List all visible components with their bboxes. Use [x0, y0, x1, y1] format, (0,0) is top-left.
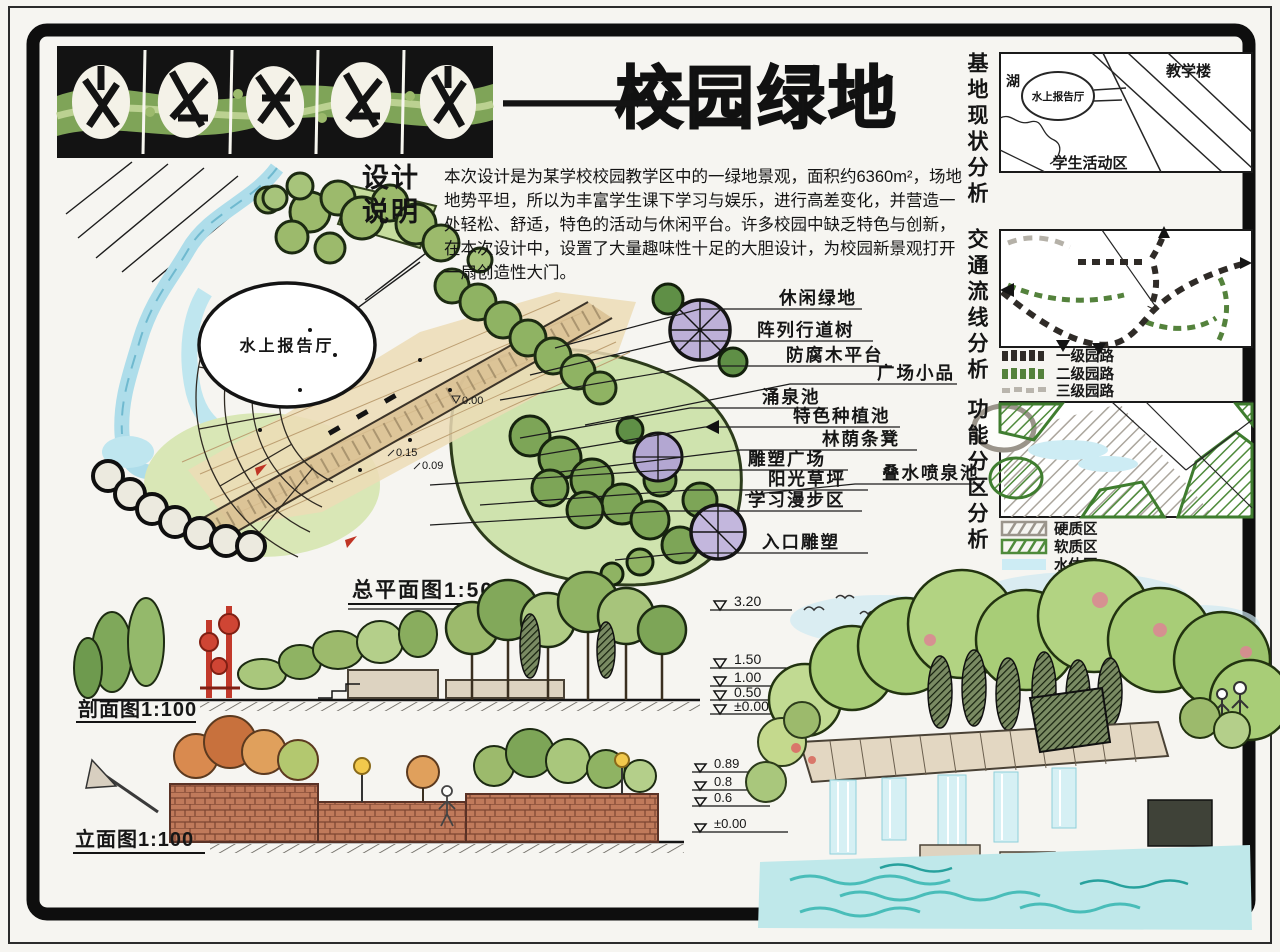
elevation-mark: 0.6: [714, 790, 732, 805]
title-artwork: [57, 46, 493, 158]
elevation-mark: 0.89: [714, 756, 739, 771]
site-label-teaching-building: 教学楼: [1165, 62, 1211, 80]
legend-label: 硬质区: [1054, 520, 1098, 538]
site-label-student-area: 学生活动区: [1052, 154, 1127, 172]
site-analysis-title: 基地现状分析: [966, 52, 987, 208]
callout-label: 林荫条凳: [822, 429, 900, 449]
flag-marker: [345, 536, 357, 548]
elevation-view: 0.89 0.8 0.6 ±0.00 立面图1:100: [73, 716, 788, 853]
board-drawing: 水上报告厅 0.00 0.15 0.09: [0, 0, 1280, 952]
legend-swatch-soft-zone: [1002, 540, 1046, 553]
pool-water: [758, 845, 1252, 930]
spot-elevation: 0.15: [396, 447, 417, 459]
spot-elevation: 0.00: [462, 395, 483, 407]
circulation-legend: 一级园路 二级园路 三级园路: [1002, 347, 1114, 400]
design-board: 水上报告厅 0.00 0.15 0.09: [0, 0, 1280, 952]
callout-label: 学习漫步区: [748, 490, 846, 510]
brick-wall: [466, 794, 658, 842]
board-title: — 校园绿地: [503, 60, 899, 141]
elevation-scale-label: 立面图1:100: [75, 827, 194, 851]
elevation-mark: 1.50: [734, 651, 761, 667]
elevation-mark: 3.20: [734, 593, 761, 609]
autumn-foliage: [174, 716, 439, 788]
callout-label: 阳光草坪: [768, 469, 846, 489]
callout-label: 涌泉池: [762, 387, 821, 407]
legend-label: 二级园路: [1056, 365, 1114, 383]
lamp: [615, 753, 629, 767]
plan-callouts: 休闲绿地 阵列行道树 防腐木平台 广场小品 涌泉池 特色种植池 林荫条凳 雕塑广…: [748, 288, 980, 552]
hall-label: 水上报告厅: [239, 336, 334, 355]
spot-elevation: 0.09: [422, 460, 443, 472]
section-scale-label: 剖面图1:100: [78, 697, 197, 721]
legend-label: 一级园路: [1056, 347, 1114, 365]
callout-label: 防腐木平台: [786, 345, 884, 365]
elevation-mark: 1.00: [734, 669, 761, 685]
legend-swatch-tertiary-path: [1002, 387, 1046, 393]
lamp: [354, 758, 370, 774]
site-label-lake: 湖: [1006, 73, 1020, 89]
site-label-hall: 水上报告厅: [1031, 90, 1085, 103]
elevation-mark: 0.8: [714, 774, 732, 789]
circulation-analysis-panel: 一级园路 二级园路 三级园路: [1000, 226, 1252, 400]
red-sculpture: [200, 606, 240, 698]
site-analysis-panel: 湖 水上报告厅 教学楼 学生活动区: [1000, 53, 1252, 172]
circulation-analysis-title: 交通流线分析: [966, 228, 987, 384]
callout-label: 特色种植池: [793, 406, 891, 426]
design-notes-body: 本次设计是为某学校校园教学区中的一绿地景观，面积约6360m²，场地地势平坦，所…: [444, 166, 962, 286]
title-dash: —: [503, 60, 850, 141]
callout-label: 阵列行道树: [757, 320, 855, 340]
callout-label: 入口雕塑: [762, 532, 840, 552]
elevation-mark: ±0.00: [734, 698, 769, 714]
callout-label: 雕塑广场: [748, 449, 826, 469]
callout-label: 广场小品: [877, 363, 955, 383]
legend-swatch-secondary-path: [1002, 368, 1044, 379]
legend-label: 软质区: [1054, 538, 1098, 556]
legend-swatch-water-zone: [1002, 559, 1046, 570]
zoning-analysis-title: 功能分区分析: [966, 398, 987, 554]
stone-weir-wall: [800, 722, 1168, 782]
zoning-analysis-panel: 硬质区 软质区 水体区: [974, 402, 1252, 574]
design-notes-heading: 设计 说明: [362, 162, 420, 230]
legend-swatch-hard-zone: [1002, 522, 1046, 535]
elevation-mark: ±0.00: [714, 816, 746, 831]
callout-label: 休闲绿地: [778, 288, 857, 308]
perspective-sketch: [746, 560, 1280, 930]
legend-swatch-primary-path: [1002, 350, 1044, 361]
legend-label: 三级园路: [1056, 382, 1114, 400]
